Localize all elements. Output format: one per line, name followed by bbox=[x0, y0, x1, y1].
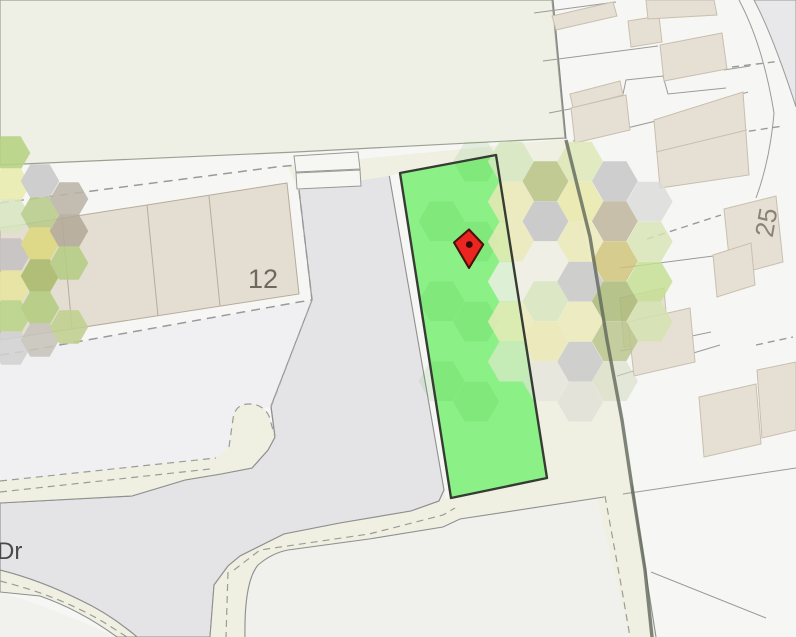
svg-text:Dr: Dr bbox=[0, 538, 22, 565]
svg-text:25: 25 bbox=[749, 206, 784, 240]
svg-text:12: 12 bbox=[248, 264, 278, 294]
